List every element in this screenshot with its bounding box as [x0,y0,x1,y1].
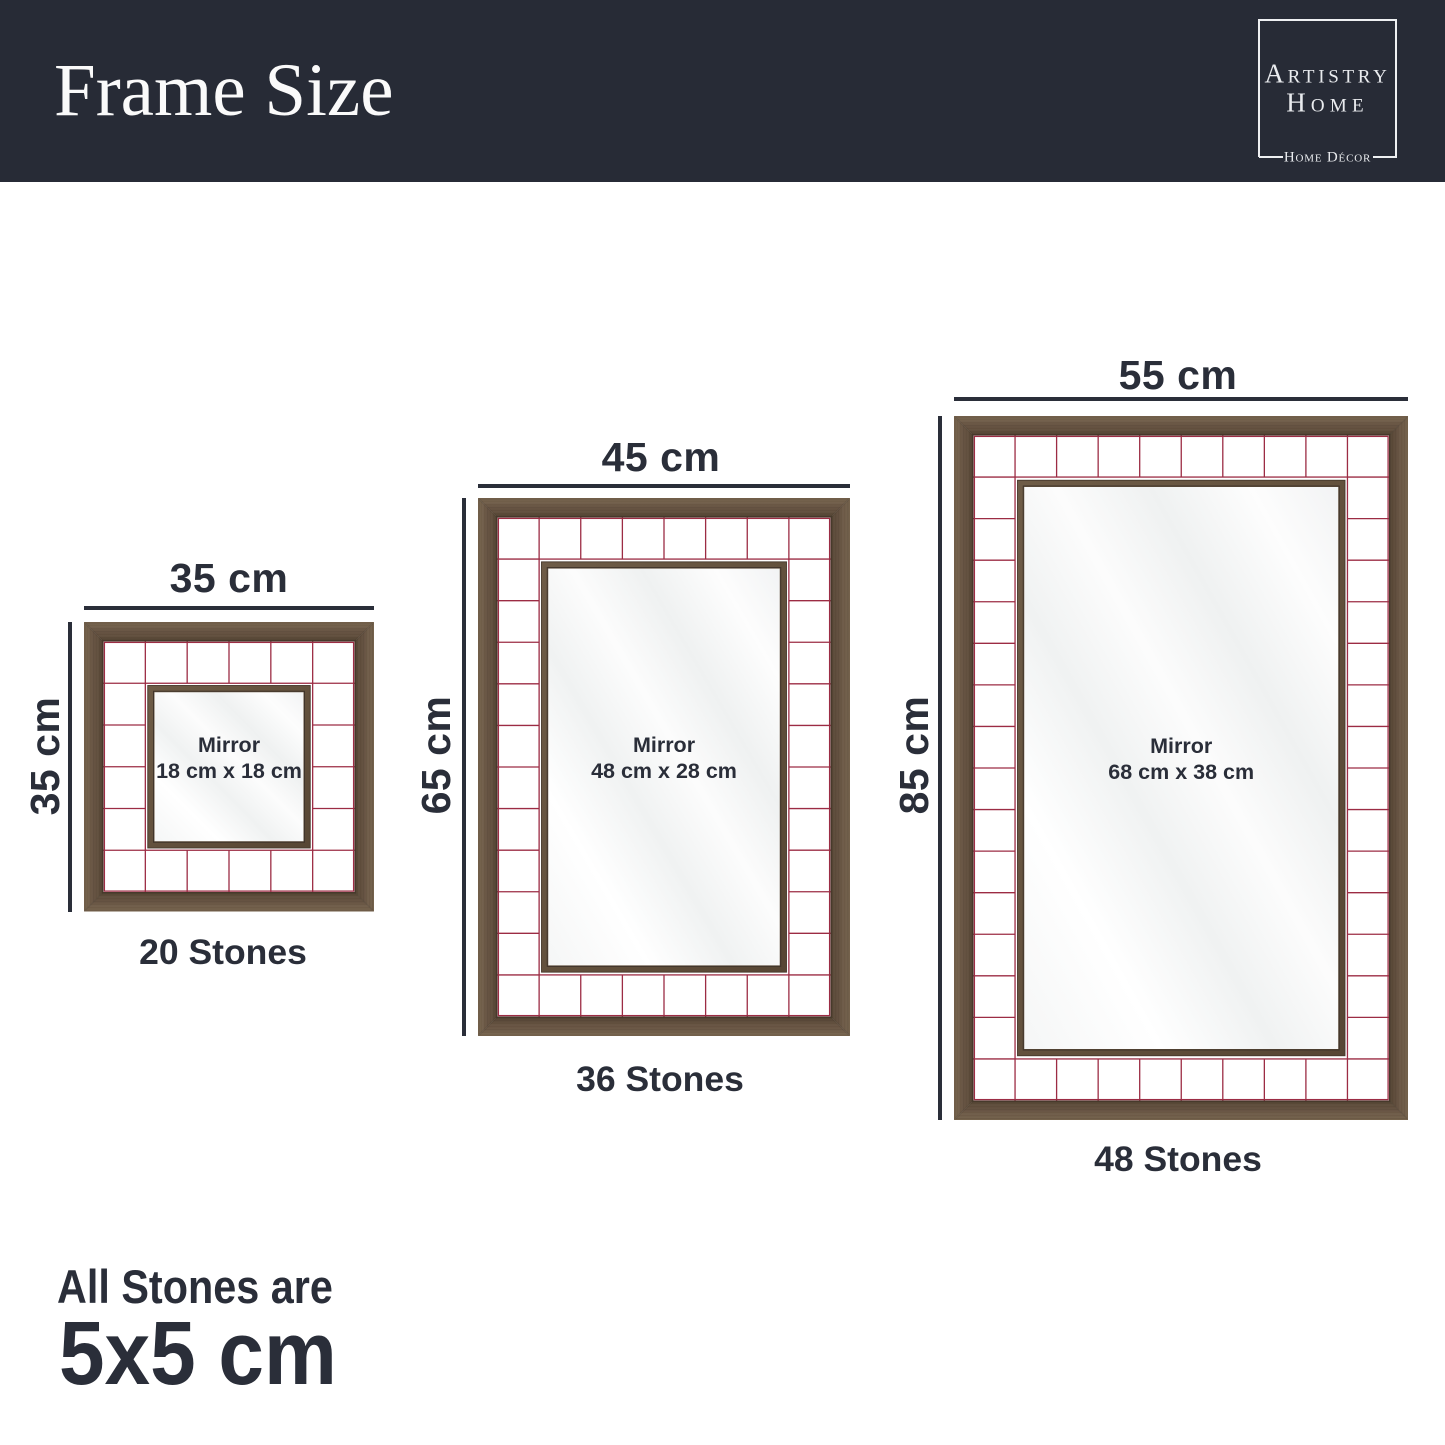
svg-text:48 cm x 28 cm: 48 cm x 28 cm [591,759,737,783]
svg-text:Mirror: Mirror [1150,734,1213,758]
svg-text:Mirror: Mirror [198,733,261,757]
svg-text:Mirror: Mirror [632,733,695,757]
svg-text:Home Décor: Home Décor [1284,150,1371,166]
svg-text:18 cm x 18 cm: 18 cm x 18 cm [156,759,302,783]
svg-text:Artistry: Artistry [1264,59,1390,89]
svg-text:Home: Home [1286,88,1369,118]
svg-text:68 cm x 38 cm: 68 cm x 38 cm [1108,760,1254,784]
